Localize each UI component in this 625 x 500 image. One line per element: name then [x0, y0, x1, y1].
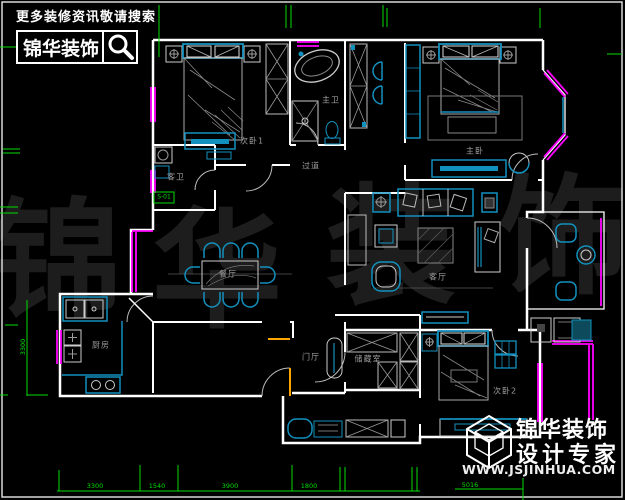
room-label-guest-bath: 客卫: [167, 172, 185, 183]
cad-floorplan-page: 锦 华 装 饰: [0, 0, 625, 500]
room-label-bedroom1: 次卧1: [240, 136, 264, 147]
room-label-foyer: 门厅: [302, 352, 320, 363]
furniture-living: [348, 189, 500, 291]
dim-bottom-4: 1800: [301, 482, 318, 490]
dim-bottom-3: 3900: [222, 482, 239, 490]
dim-bottom-1: 3300: [87, 482, 104, 490]
furniture-master-bedroom: [406, 44, 529, 177]
footer-website: WWW.JSJINHUA.COM: [462, 462, 616, 477]
promo-tagline: 更多装修资讯敬请搜索: [16, 6, 156, 25]
balcony-right: [527, 212, 604, 309]
section-marker-label: S-01: [157, 194, 171, 201]
brand-name: 锦华装饰: [18, 34, 102, 61]
room-label-master-bath: 主卫: [322, 95, 340, 106]
balcony-bottom: [288, 419, 405, 438]
furniture-bedroom1: [166, 44, 288, 159]
brand-search-box: 锦华装饰: [16, 30, 138, 64]
door-accents: [268, 339, 290, 396]
room-label-corridor: 过道: [302, 161, 320, 172]
room-label-storage: 储藏室: [355, 354, 382, 365]
room-label-bedroom2: 次卧2: [493, 386, 517, 397]
furniture-corridor: [350, 44, 382, 128]
dim-bottom-right: 5016: [462, 481, 479, 489]
room-label-living: 客厅: [429, 272, 447, 283]
room-label-master-bedroom: 主卧: [466, 146, 484, 157]
room-label-kitchen: 厨房: [92, 340, 110, 351]
dim-left: 3300: [19, 339, 27, 356]
furniture-foyer: [327, 338, 342, 378]
room-label-dining: 餐厅: [219, 269, 237, 280]
search-icon: [104, 32, 136, 62]
promo-header: 更多装修资讯敬请搜索 锦华装饰: [16, 6, 156, 64]
dim-bottom-2: 1540: [149, 482, 166, 490]
